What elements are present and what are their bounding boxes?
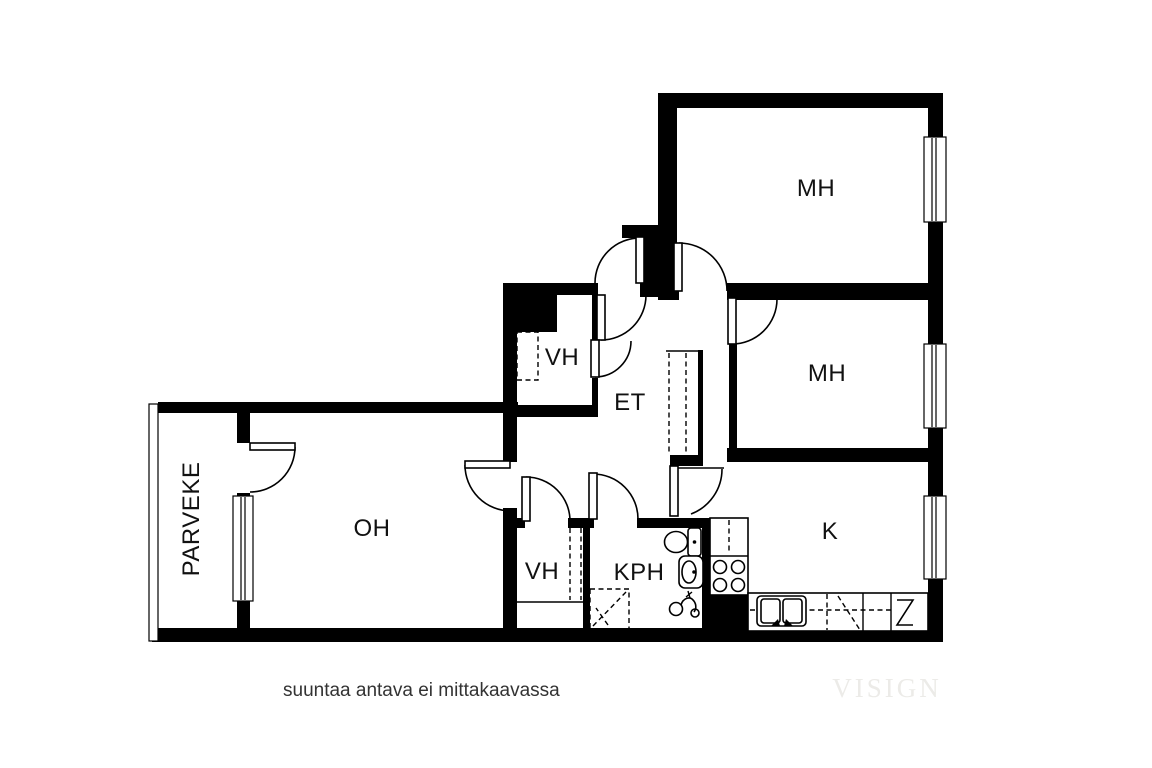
door-entrance-inner — [597, 295, 646, 340]
bathroom-fixtures — [665, 528, 704, 617]
room-label-parveke: PARVEKE — [178, 462, 205, 577]
door-mh1 — [674, 243, 727, 291]
room-label-mh2: MH — [808, 360, 846, 387]
door-mh2 — [728, 298, 777, 344]
door-oh — [465, 461, 511, 511]
room-label-k: K — [822, 518, 839, 545]
door-balcony — [250, 443, 295, 492]
door-entrance-outer — [595, 237, 644, 283]
scale-disclaimer: suuntaa antava ei mittakaavassa — [283, 680, 560, 701]
sink-icon — [679, 556, 703, 588]
room-label-oh: OH — [354, 515, 391, 542]
window-mh1 — [924, 137, 946, 222]
window-mh2 — [924, 344, 946, 428]
room-label-mh1: MH — [797, 175, 835, 202]
door-kph — [589, 473, 638, 519]
room-label-et: ET — [614, 389, 646, 416]
room-label-vh-top: VH — [545, 344, 579, 371]
balcony-railing — [149, 404, 158, 641]
shower-faucet-icon — [670, 591, 700, 617]
room-label-kph: KPH — [614, 559, 665, 586]
window-oh — [233, 496, 253, 601]
wardrobe-icon-et — [666, 351, 703, 453]
washing-machine-icon — [590, 589, 629, 629]
toilet-icon — [665, 528, 702, 556]
window-kitchen — [924, 496, 946, 579]
floor-plan-svg: MH MH K OH ET KPH VH VH PARVEKE suuntaa … — [0, 0, 1152, 768]
kitchen-sink-icon — [757, 596, 806, 626]
room-label-vh-bottom: VH — [525, 558, 559, 585]
door-vh-top — [591, 340, 631, 377]
door-kitchen — [670, 466, 724, 516]
wardrobe-icon-vh-top — [517, 332, 538, 380]
door-vh-bottom — [522, 477, 570, 521]
floor-plan-page: MH MH K OH ET KPH VH VH PARVEKE suuntaa … — [0, 0, 1152, 768]
stove-icon — [710, 518, 748, 595]
watermark: VISIGN — [832, 673, 942, 703]
